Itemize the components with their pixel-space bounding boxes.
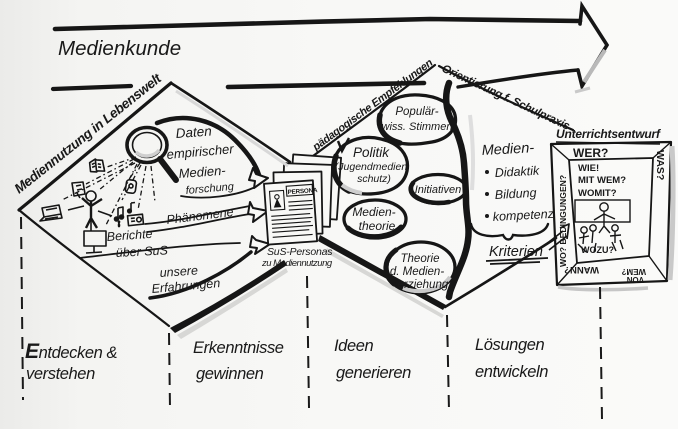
svg-text:generieren: generieren <box>336 364 411 382</box>
svg-text:theorie: theorie <box>359 219 396 233</box>
svg-text:Politik: Politik <box>353 145 390 160</box>
svg-text:Medien-: Medien- <box>352 205 395 219</box>
svg-text:verstehen: verstehen <box>26 365 95 383</box>
svg-text:WAS?: WAS? <box>654 150 666 180</box>
svg-text:wiss. Stimmen: wiss. Stimmen <box>382 121 453 133</box>
svg-text:Daten: Daten <box>175 124 212 141</box>
svg-text:Ideen: Ideen <box>334 337 374 355</box>
svg-text:über SuS: über SuS <box>115 243 168 260</box>
svg-text:WIE!: WIE! <box>578 163 599 174</box>
svg-text:WEM?: WEM? <box>621 267 646 276</box>
svg-text:Populär-: Populär- <box>395 106 438 118</box>
svg-text:schutz): schutz) <box>357 173 391 185</box>
svg-text:Didaktik: Didaktik <box>494 164 540 180</box>
svg-text:WANN?: WANN? <box>564 264 599 275</box>
svg-text:Initiativen: Initiativen <box>415 184 461 196</box>
svg-text:gewinnen: gewinnen <box>196 365 264 383</box>
svg-text:erziehung: erziehung <box>398 279 449 291</box>
svg-text:Medienkunde: Medienkunde <box>58 37 181 60</box>
svg-text:Unterrichtsentwurf: Unterrichtsentwurf <box>556 127 661 141</box>
svg-text:entwickeln: entwickeln <box>475 363 548 381</box>
svg-text:WER?: WER? <box>573 146 608 160</box>
svg-text:zu Mediennutzung: zu Mediennutzung <box>261 258 333 269</box>
svg-text:SuS-Personas: SuS-Personas <box>267 246 333 258</box>
svg-text:(Jugendmedien: (Jugendmedien <box>335 161 408 173</box>
svg-text:d. Medien-: d. Medien- <box>390 266 445 278</box>
svg-text:WO? BEDINGUNGEN?: WO? BEDINGUNGEN? <box>558 175 568 267</box>
svg-text:VON: VON <box>626 275 644 284</box>
svg-text:Kriterien: Kriterien <box>489 244 543 260</box>
svg-text:Theorie: Theorie <box>401 253 440 265</box>
svg-text:WOMIT?: WOMIT? <box>578 188 617 199</box>
svg-text:Entdecken &: Entdecken & <box>25 340 118 363</box>
svg-text:WOZU?: WOZU? <box>581 245 614 255</box>
svg-text:Erkenntnisse: Erkenntnisse <box>193 339 284 357</box>
svg-text:MIT WEM?: MIT WEM? <box>578 175 626 186</box>
svg-text:Bildung: Bildung <box>494 186 536 202</box>
svg-text:Medien-: Medien- <box>481 140 534 159</box>
svg-text:Lösungen: Lösungen <box>475 336 545 354</box>
